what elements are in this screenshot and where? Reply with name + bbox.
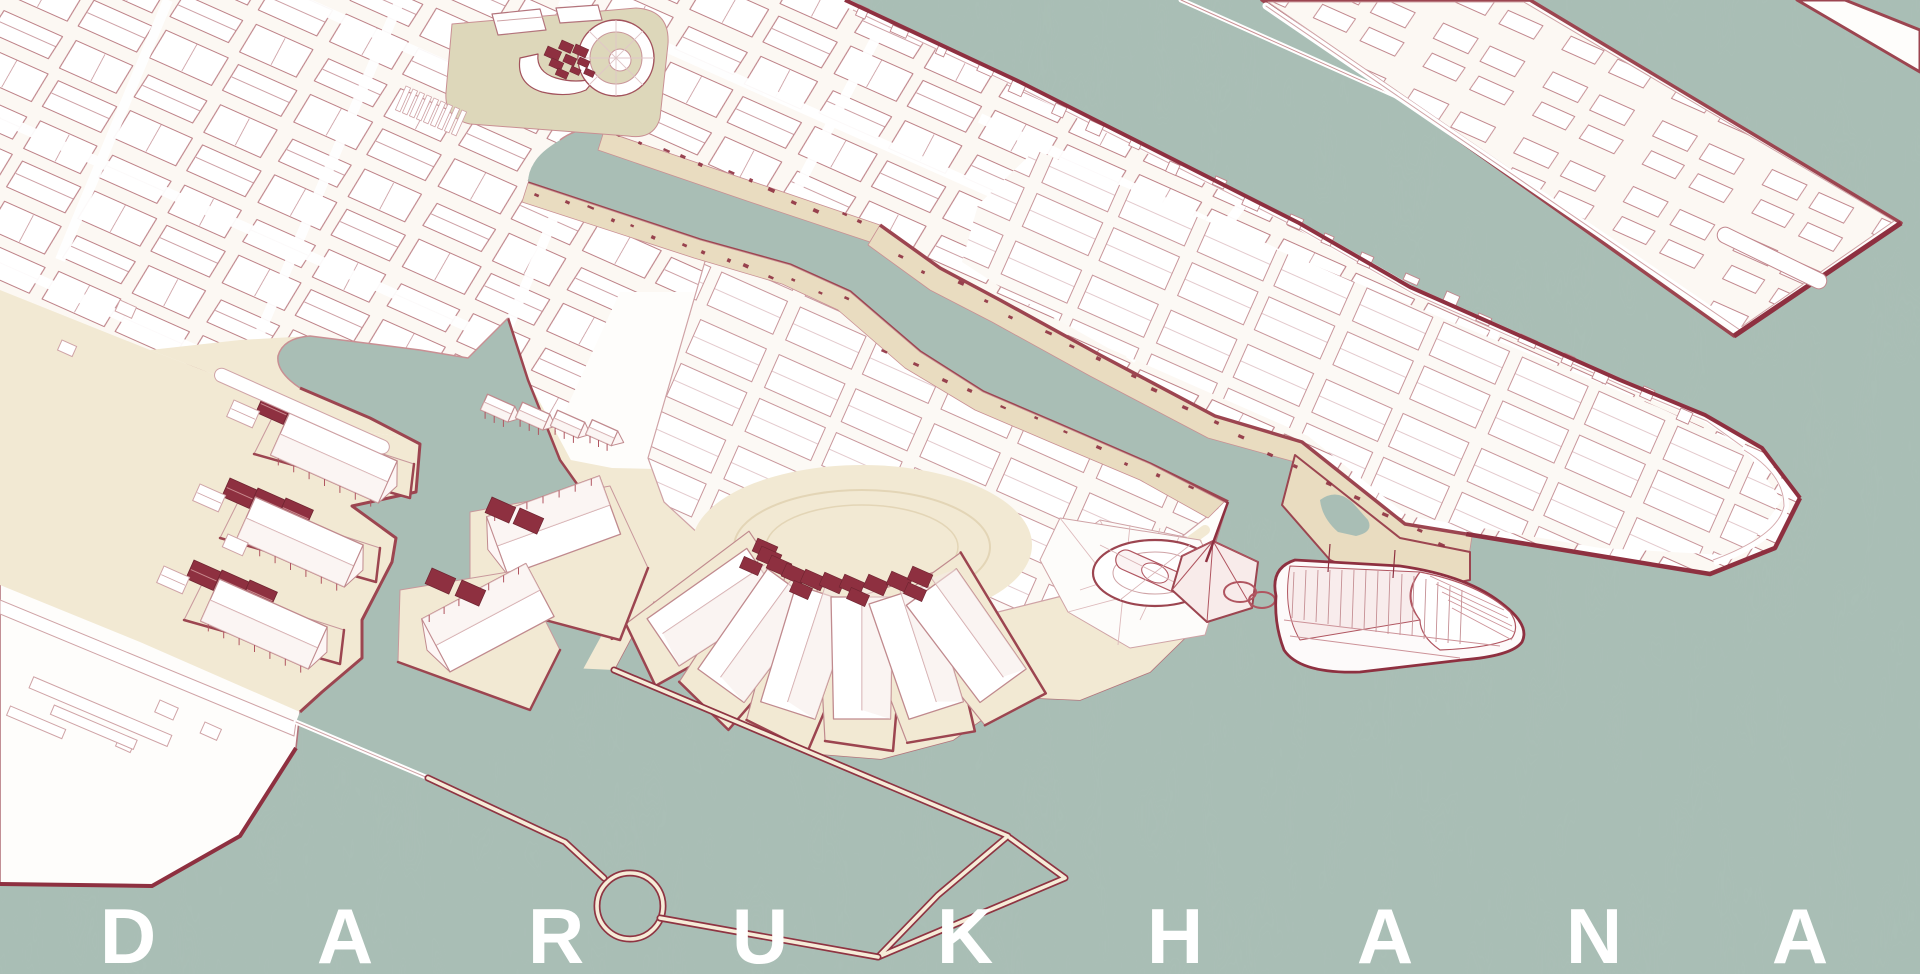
svg-text:K: K (937, 892, 993, 974)
svg-text:H: H (1147, 892, 1203, 974)
svg-text:A: A (317, 892, 373, 974)
svg-text:U: U (732, 892, 788, 974)
svg-text:A: A (1772, 892, 1828, 974)
svg-text:R: R (528, 892, 584, 974)
svg-text:D: D (100, 892, 156, 974)
svg-text:N: N (1566, 892, 1622, 974)
svg-text:A: A (1357, 892, 1413, 974)
